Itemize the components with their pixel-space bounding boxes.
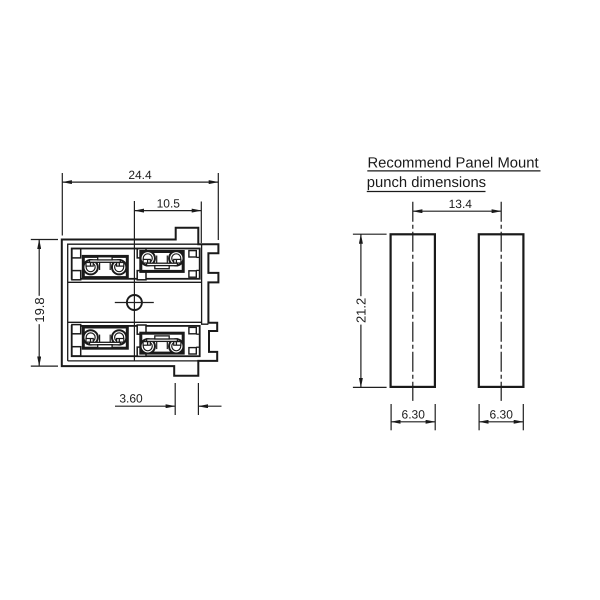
svg-text:10.5: 10.5 (157, 197, 181, 211)
svg-text:21.2: 21.2 (354, 298, 369, 323)
svg-text:6.30: 6.30 (490, 408, 514, 422)
svg-text:6.30: 6.30 (402, 408, 426, 422)
svg-text:13.4: 13.4 (449, 197, 473, 211)
svg-text:24.4: 24.4 (128, 168, 152, 182)
svg-text:punch dimensions: punch dimensions (367, 175, 486, 191)
svg-text:19.8: 19.8 (32, 297, 47, 322)
svg-text:3.60: 3.60 (119, 392, 143, 406)
svg-text:Recommend Panel Mount: Recommend Panel Mount (368, 156, 539, 172)
